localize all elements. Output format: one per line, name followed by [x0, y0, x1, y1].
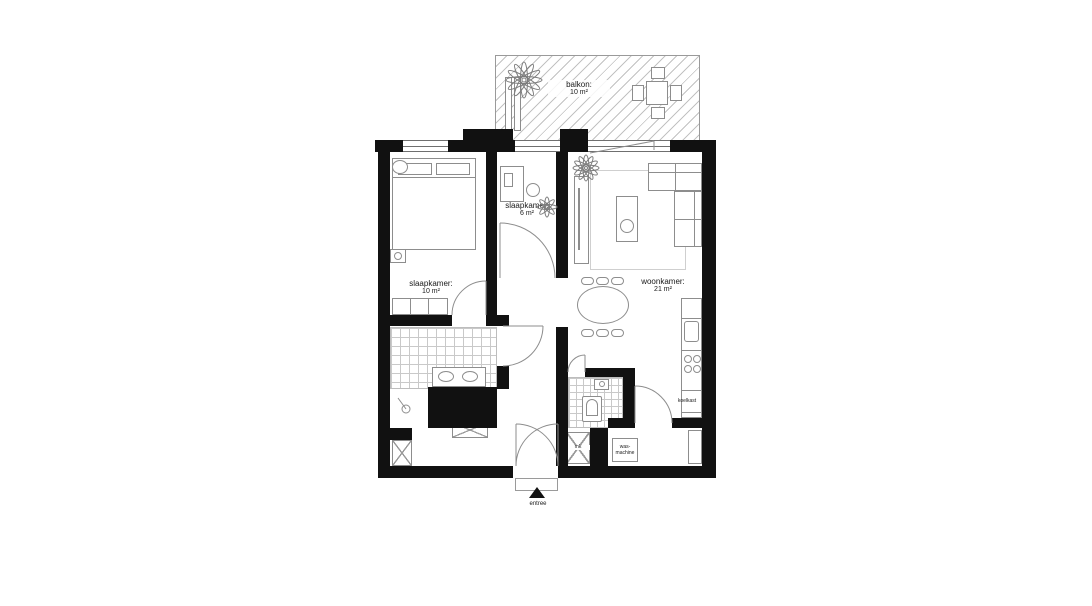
tv-cabinet [574, 176, 589, 264]
stove-burner [693, 355, 701, 363]
room-area: 10 m² [394, 288, 468, 296]
stove-burner [693, 365, 701, 373]
balcony-chair [670, 85, 682, 101]
wall [558, 466, 716, 478]
room-area: 6 m² [497, 210, 557, 218]
entrance-label: entree [513, 501, 563, 507]
wall [497, 366, 509, 389]
laundry-door [635, 386, 672, 423]
kitchen-sink [684, 321, 699, 342]
bowl [620, 219, 634, 233]
bedroom-small-label: slaapkamer: 6 m² [497, 201, 557, 218]
dining-chair [611, 329, 624, 337]
wall [486, 152, 497, 315]
basin-bowl [438, 371, 454, 382]
hand-basin-bowl [599, 381, 605, 387]
bedroom-main-label: slaapkamer: 10 m² [394, 279, 468, 296]
wall [590, 428, 608, 466]
planter-box [505, 77, 512, 131]
tv [578, 188, 580, 250]
stove-burner [684, 355, 692, 363]
wall [608, 418, 635, 428]
wall [623, 368, 635, 418]
wall [556, 327, 568, 466]
meter-cupboard-label: mk [566, 445, 590, 450]
pillow [436, 163, 470, 175]
laundry-cabinet [688, 430, 702, 464]
washing-machine-label-line2: machine [613, 451, 637, 456]
room-area: 21 m² [630, 286, 696, 294]
dining-chair [581, 277, 594, 285]
desk-monitor [504, 173, 513, 187]
counter-divider [681, 350, 702, 351]
hall-wardrobe [392, 440, 412, 466]
window [403, 140, 448, 152]
dining-chair [581, 329, 594, 337]
balcony-door-opening [588, 140, 670, 152]
wall [560, 129, 588, 152]
room-area: 10 m² [548, 89, 610, 97]
dining-table [577, 286, 629, 324]
wall [378, 428, 412, 440]
bedside-lamp [392, 160, 408, 174]
wall [672, 418, 702, 428]
wall [463, 129, 513, 140]
sofa-cushion-line [675, 163, 676, 191]
dresser [392, 298, 448, 315]
toilet-bowl [586, 399, 598, 416]
wall [585, 368, 623, 377]
basin-bowl [462, 371, 478, 382]
wall [378, 466, 513, 478]
wall [390, 315, 452, 326]
wall [556, 152, 568, 278]
wall [702, 140, 716, 478]
dining-chair [611, 277, 624, 285]
planter-box [514, 77, 521, 131]
dining-chair [596, 277, 609, 285]
wc-door [568, 355, 585, 372]
balcony-chair [632, 85, 644, 101]
desk-chair [526, 183, 540, 197]
small-bedroom-door [500, 223, 555, 278]
entrance-arrow-icon [529, 487, 545, 498]
dining-chair [596, 329, 609, 337]
room-name: balkon: [548, 80, 610, 89]
wall [486, 315, 509, 326]
window [515, 140, 560, 152]
room-name: woonkamer: [630, 277, 696, 286]
bathroom-door [503, 326, 543, 366]
balcony-area: balkon: 10 m² [495, 55, 700, 141]
wall [428, 387, 497, 428]
entrance-door [516, 424, 558, 466]
balcony-chair [651, 107, 665, 119]
balcony-chair [651, 67, 665, 79]
room-name: slaapkamer: [394, 279, 468, 288]
stove-burner [684, 365, 692, 373]
dresser-divider [428, 298, 429, 315]
room-name: slaapkamer: [497, 201, 557, 210]
bed-duvet-line [392, 177, 476, 178]
fridge-label: koelkast [670, 399, 704, 404]
balcony-table [646, 81, 668, 105]
counter-divider [681, 412, 702, 413]
sofa-cushion-line [674, 219, 702, 220]
shower-head-icon [398, 398, 410, 413]
side-table-lamp [394, 252, 402, 260]
washing-machine: was- machine [612, 438, 638, 462]
dresser-divider [410, 298, 411, 315]
wall [448, 140, 515, 152]
floor-plan: balkon: 10 m² koelkast [0, 0, 1092, 606]
counter-divider [681, 318, 702, 319]
balcony-label: balkon: 10 m² [548, 80, 610, 97]
living-room-label: woonkamer: 21 m² [630, 277, 696, 294]
counter-divider [681, 390, 702, 391]
